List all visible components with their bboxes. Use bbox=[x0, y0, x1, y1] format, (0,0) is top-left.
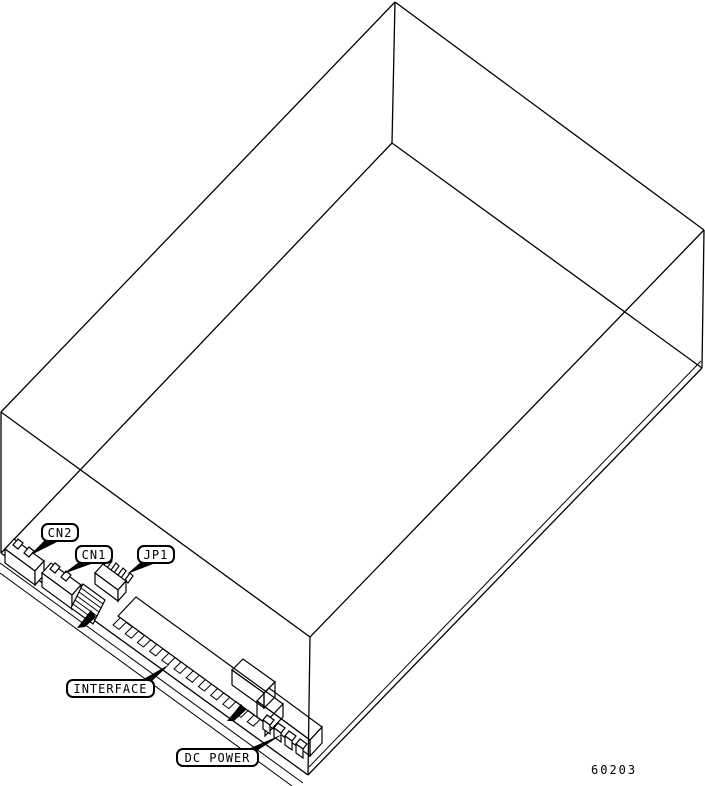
callout-cn2: CN2 bbox=[41, 523, 79, 542]
callout-dc-power: DC POWER bbox=[176, 748, 259, 767]
cn2-connector bbox=[5, 539, 44, 585]
enclosure-wireframe bbox=[1, 2, 704, 775]
cn2-leader bbox=[29, 540, 57, 556]
callout-jp1: JP1 bbox=[137, 545, 175, 564]
drawing-number: 60203 bbox=[591, 763, 637, 777]
callout-interface: INTERFACE bbox=[66, 679, 155, 698]
callout-cn1: CN1 bbox=[75, 545, 113, 564]
figure-canvas: CN2 CN1 JP1 INTERFACE DC POWER 60203 bbox=[0, 0, 705, 786]
drive-isometric-drawing bbox=[0, 0, 705, 786]
